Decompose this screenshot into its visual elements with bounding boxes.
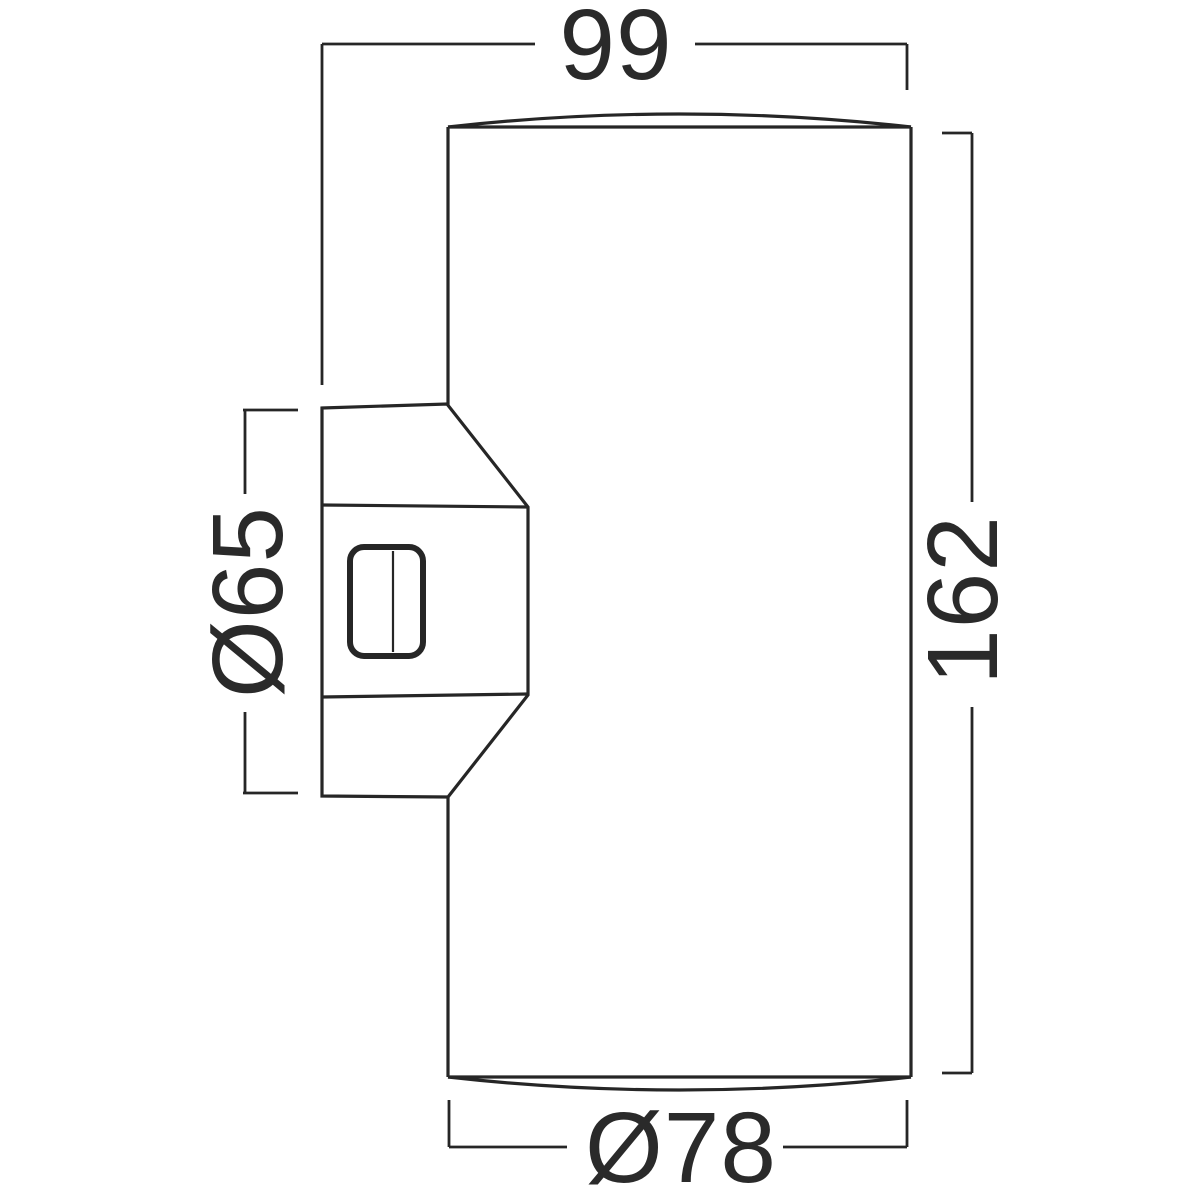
cable-clamp xyxy=(350,547,423,656)
fixture-body xyxy=(448,114,911,1090)
line-art xyxy=(243,44,972,1147)
body-bottom-rim-arc xyxy=(448,1077,911,1090)
mount-bracket xyxy=(322,404,528,797)
drawing-canvas xyxy=(0,0,1200,1200)
body-top-rim-arc xyxy=(448,114,911,127)
dim-label-height-right: 162 xyxy=(913,515,1013,685)
dim-label-diameter-bottom: Ø78 xyxy=(585,1098,777,1198)
dim-label-width-top: 99 xyxy=(559,0,672,95)
bracket-upper-fold-line xyxy=(322,505,528,507)
bracket-lower-fold-line xyxy=(322,694,528,697)
dimension-drawing: 99 162 Ø65 Ø78 xyxy=(0,0,1200,1200)
dim-label-bracket-diameter-left: Ø65 xyxy=(198,506,298,698)
